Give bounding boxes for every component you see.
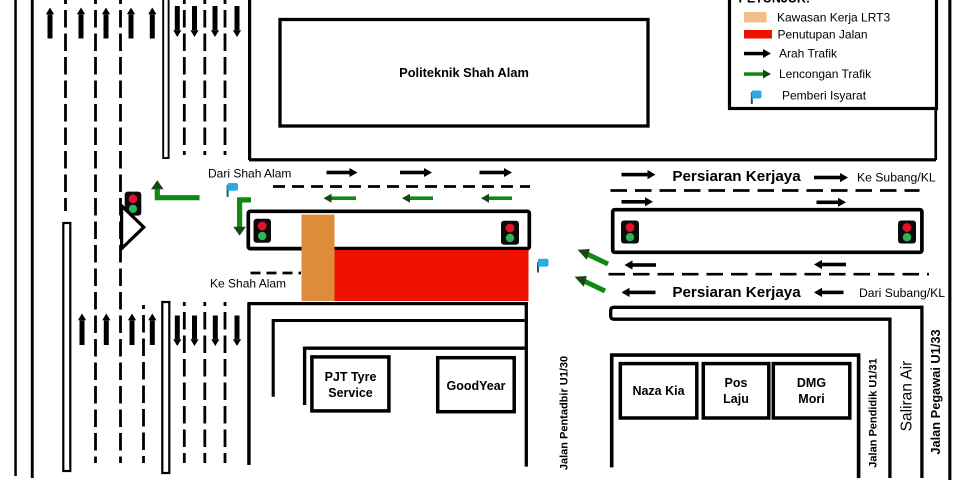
svg-text:Lencongan Trafik: Lencongan Trafik — [779, 67, 872, 81]
svg-text:Dari Subang/KL: Dari Subang/KL — [859, 286, 945, 300]
svg-text:Penutupan Jalan: Penutupan Jalan — [778, 28, 868, 42]
svg-text:Arah Trafik: Arah Trafik — [779, 47, 838, 61]
svg-text:Mori: Mori — [798, 392, 824, 406]
svg-text:Naza Kia: Naza Kia — [632, 384, 685, 398]
svg-text:Saliran Air: Saliran Air — [899, 361, 916, 432]
svg-text:Politeknik Shah Alam: Politeknik Shah Alam — [399, 65, 529, 80]
svg-text:Ke Shah Alam: Ke Shah Alam — [210, 277, 286, 291]
svg-text:Pemberi Isyarat: Pemberi Isyarat — [782, 89, 867, 103]
svg-text:Persiaran Kerjaya: Persiaran Kerjaya — [672, 284, 801, 301]
svg-text:Jalan Pentadbir U1/30: Jalan Pentadbir U1/30 — [559, 356, 571, 470]
svg-text:PJT Tyre: PJT Tyre — [325, 370, 377, 384]
svg-text:Kawasan Kerja LRT3: Kawasan Kerja LRT3 — [777, 11, 891, 25]
svg-text:Laju: Laju — [723, 392, 749, 406]
svg-text:Ke Subang/KL: Ke Subang/KL — [857, 171, 936, 185]
svg-text:DMG: DMG — [797, 376, 826, 390]
svg-text:Jalan Pegawai U1/33: Jalan Pegawai U1/33 — [928, 329, 943, 454]
svg-text:Dari Shah Alam: Dari Shah Alam — [208, 167, 291, 181]
svg-text:Jalan Pendidik U1/31: Jalan Pendidik U1/31 — [868, 358, 880, 467]
svg-text:PETUNJUK:: PETUNJUK: — [739, 0, 811, 6]
svg-text:Service: Service — [328, 386, 373, 400]
svg-text:GoodYear: GoodYear — [446, 379, 505, 393]
svg-text:Persiaran Kerjaya: Persiaran Kerjaya — [672, 168, 801, 185]
svg-text:Pos: Pos — [725, 376, 748, 390]
